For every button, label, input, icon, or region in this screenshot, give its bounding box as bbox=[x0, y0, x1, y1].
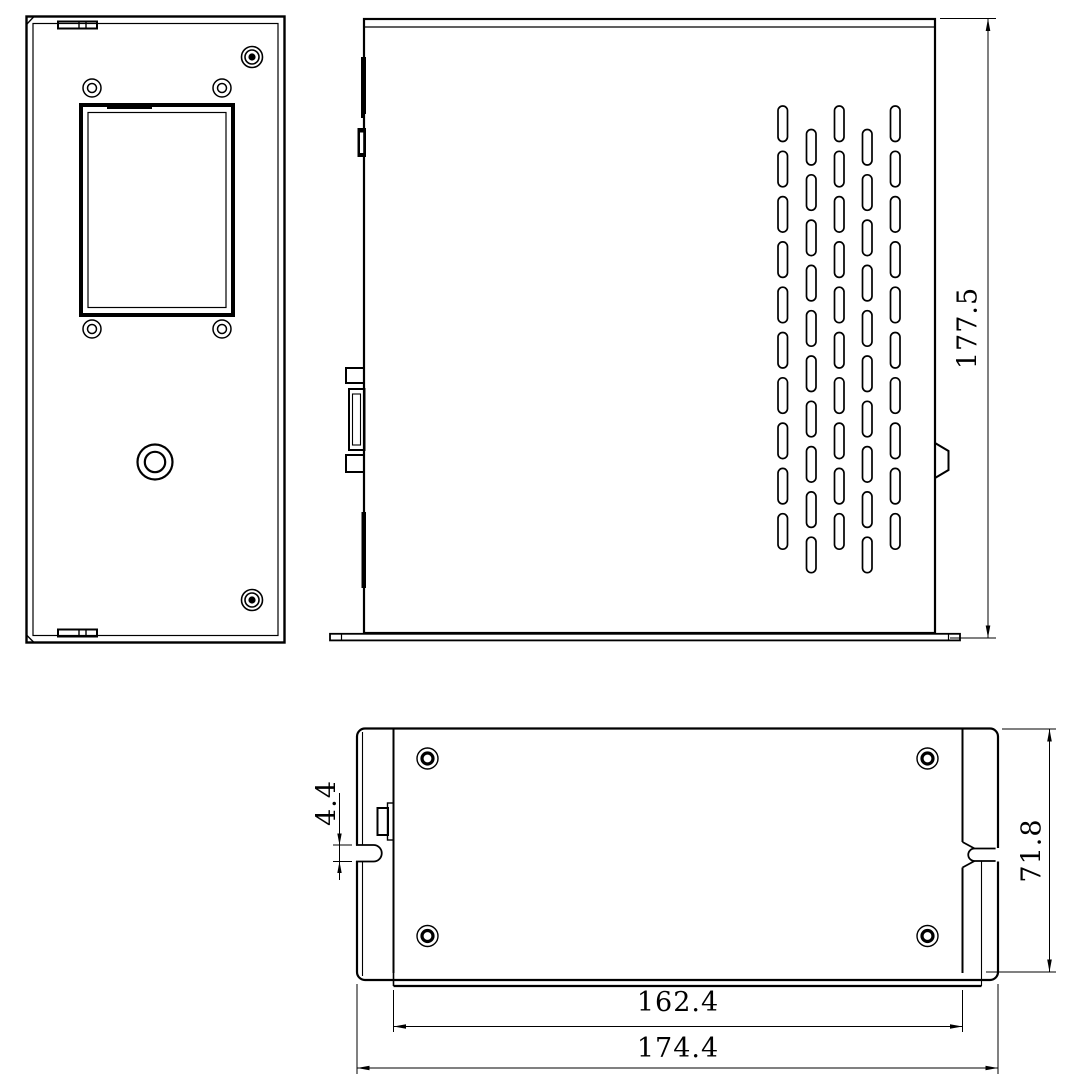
latch-notch-side bbox=[935, 443, 949, 478]
vent-slot bbox=[807, 447, 817, 483]
vent-slot bbox=[891, 423, 901, 459]
vent-slot bbox=[807, 130, 817, 166]
vent-slot bbox=[835, 242, 845, 278]
base-plate-side bbox=[330, 634, 960, 641]
terminal-block-edge bbox=[361, 57, 366, 114]
dim-body-width-label: 162.4 bbox=[637, 987, 719, 1018]
vent-slot bbox=[778, 106, 788, 142]
vent-grid bbox=[778, 106, 900, 573]
panel-screw-bottom-right bbox=[242, 590, 263, 611]
connector-flange-bottom bbox=[346, 455, 364, 472]
arrowhead bbox=[337, 834, 341, 846]
engineering-drawing-canvas: 177.5 bbox=[0, 0, 1080, 1087]
vent-slot bbox=[807, 492, 817, 528]
terminal-block-tab bbox=[361, 114, 365, 118]
vent-slot bbox=[863, 401, 873, 437]
vent-slot bbox=[863, 447, 873, 483]
vent-slot bbox=[891, 197, 901, 233]
arrowhead bbox=[1047, 960, 1052, 973]
arrowhead bbox=[1047, 729, 1052, 742]
arrowhead bbox=[394, 1024, 407, 1028]
vent-slot bbox=[807, 311, 817, 347]
usb-connector-edge bbox=[358, 128, 367, 157]
dim-slot-width: 4.4 bbox=[312, 780, 353, 880]
vent-slot bbox=[778, 378, 788, 414]
vent-slot bbox=[807, 220, 817, 256]
vent-slot bbox=[863, 537, 873, 573]
panel-screw-top-right bbox=[242, 47, 263, 68]
vent-slot bbox=[891, 378, 901, 414]
power-button-hole bbox=[138, 445, 173, 480]
vent-slot bbox=[778, 468, 788, 504]
display-window bbox=[81, 105, 233, 315]
display-bezel bbox=[81, 105, 233, 315]
vent-slot bbox=[807, 356, 817, 392]
mounting-notch-right bbox=[963, 842, 996, 986]
vent-slot bbox=[891, 151, 901, 187]
vent-slot bbox=[863, 311, 873, 347]
vent-slot bbox=[807, 401, 817, 437]
arrowhead bbox=[986, 19, 991, 32]
front-bezel-lip bbox=[394, 973, 982, 986]
dim-overall-width-label: 174.4 bbox=[637, 1033, 719, 1064]
vent-slot bbox=[778, 197, 788, 233]
mounting-slot-left bbox=[356, 845, 382, 862]
front-outer-outline bbox=[27, 17, 285, 643]
vent-slot bbox=[863, 220, 873, 256]
vent-slot bbox=[835, 287, 845, 323]
vent-slot bbox=[778, 151, 788, 187]
arrowhead bbox=[986, 626, 991, 639]
mounting-plate-outline bbox=[357, 729, 998, 981]
vent-slot bbox=[863, 265, 873, 301]
vent-slot bbox=[778, 287, 788, 323]
dim-side-height-label: 177.5 bbox=[953, 287, 984, 369]
arrowhead bbox=[357, 1066, 370, 1070]
vent-slot bbox=[891, 106, 901, 142]
vent-slot bbox=[807, 265, 817, 301]
vent-slot bbox=[891, 242, 901, 278]
db-connector-bottom bbox=[378, 803, 394, 840]
vent-slot bbox=[835, 378, 845, 414]
front-view bbox=[27, 17, 285, 643]
bottom-view: 4.4 71.8 162.4 174.4 bbox=[312, 729, 1057, 1075]
vent-slot bbox=[778, 423, 788, 459]
bezel-screws bbox=[83, 79, 231, 338]
vent-slot bbox=[835, 333, 845, 369]
vent-slot bbox=[835, 468, 845, 504]
vent-slot bbox=[778, 242, 788, 278]
vent-slot bbox=[835, 423, 845, 459]
connector-flange-top bbox=[346, 368, 364, 383]
arrowhead bbox=[337, 862, 341, 874]
vent-slot bbox=[778, 514, 788, 550]
vent-slot bbox=[863, 492, 873, 528]
base-screws bbox=[417, 748, 938, 947]
vent-slot bbox=[807, 175, 817, 211]
side-body-outline bbox=[364, 19, 935, 633]
front-inner-outline bbox=[33, 24, 278, 636]
dim-body-width: 162.4 bbox=[394, 987, 963, 1032]
vent-slot bbox=[863, 175, 873, 211]
hinge-tabs-top bbox=[58, 22, 97, 29]
vent-slot bbox=[807, 537, 817, 573]
vent-slot bbox=[891, 514, 901, 550]
arrowhead bbox=[950, 1024, 963, 1028]
vent-slot bbox=[891, 333, 901, 369]
dim-slot-width-label: 4.4 bbox=[312, 780, 343, 826]
dim-depth-label: 71.8 bbox=[1017, 818, 1048, 882]
db-connector-side bbox=[349, 389, 365, 450]
vent-slot bbox=[891, 468, 901, 504]
vent-slot bbox=[891, 287, 901, 323]
vent-slot bbox=[835, 197, 845, 233]
vent-slot bbox=[835, 151, 845, 187]
side-view: 177.5 bbox=[330, 19, 996, 641]
vent-slot bbox=[835, 106, 845, 142]
arrowhead bbox=[986, 1066, 999, 1070]
vent-slot bbox=[835, 514, 845, 550]
vent-slot bbox=[778, 333, 788, 369]
dim-side-height: 177.5 bbox=[940, 19, 996, 639]
vent-slot bbox=[863, 130, 873, 166]
vent-slot bbox=[863, 356, 873, 392]
display-screen-outline bbox=[88, 113, 226, 308]
card-edge-strip bbox=[362, 512, 367, 588]
three-view-drawing: 177.5 bbox=[0, 0, 1080, 1087]
